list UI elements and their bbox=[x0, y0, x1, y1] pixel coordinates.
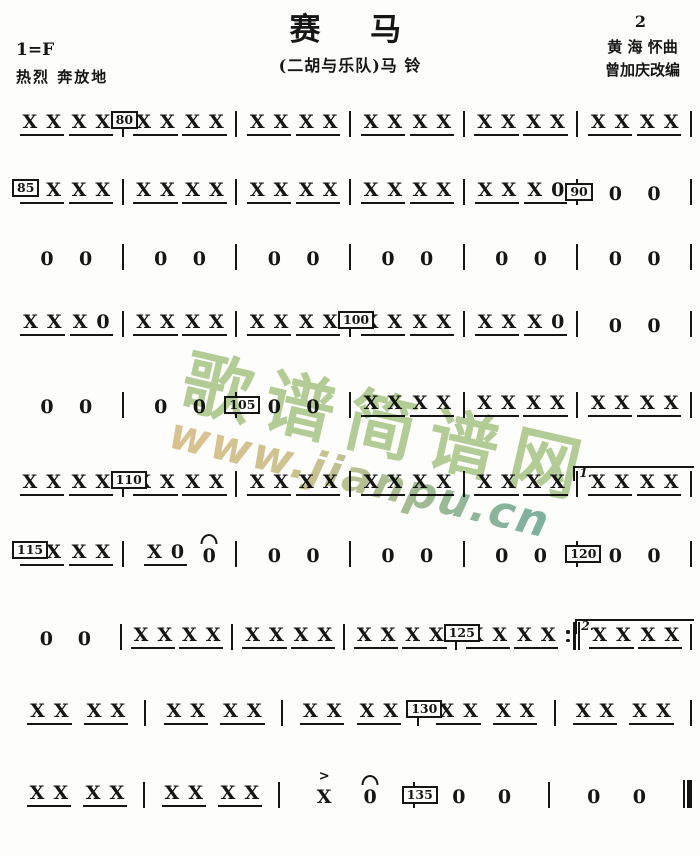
beamed-note-pair: XX bbox=[637, 394, 682, 417]
strike-note: X bbox=[463, 702, 478, 721]
measure: 00 bbox=[10, 398, 122, 418]
strike-note: X bbox=[591, 394, 606, 413]
strike-note: X bbox=[95, 473, 110, 492]
measure: 00 bbox=[465, 250, 577, 270]
accented-note: >X bbox=[317, 788, 332, 807]
strike-note: X bbox=[209, 313, 224, 332]
rest-note: 0 bbox=[79, 398, 92, 417]
strike-note: X bbox=[436, 394, 451, 413]
beamed-note-pair: XX bbox=[410, 181, 455, 204]
strike-note: X bbox=[136, 181, 151, 200]
rest-note: 0 bbox=[193, 398, 206, 417]
strike-note: X bbox=[188, 784, 203, 803]
score-line: XXX0XXXXXXXX100XXXXXXX000 bbox=[10, 299, 692, 337]
strike-note: X bbox=[53, 784, 68, 803]
beamed-note-pair: XX bbox=[133, 181, 178, 204]
strike-note: X bbox=[185, 313, 200, 332]
strike-note: X bbox=[223, 702, 238, 721]
beamed-note-pair: XX bbox=[296, 473, 341, 496]
beamed-note-pair: XX bbox=[296, 181, 341, 204]
measure: 00 bbox=[237, 547, 349, 567]
strike-note: X bbox=[364, 181, 379, 200]
strike-note: X bbox=[405, 626, 420, 645]
strike-note: X bbox=[387, 473, 402, 492]
strike-note: X bbox=[492, 626, 507, 645]
beamed-note-pair: XX bbox=[27, 702, 72, 725]
measure-number-box: 130 bbox=[406, 700, 442, 718]
strike-note: X bbox=[245, 626, 260, 645]
beamed-note-pair: XX bbox=[637, 113, 682, 136]
strike-note: X bbox=[413, 181, 428, 200]
rest-note: 0 bbox=[495, 547, 508, 566]
strike-note: X bbox=[87, 702, 102, 721]
strike-note: X bbox=[160, 473, 175, 492]
fermata-icon bbox=[201, 534, 218, 544]
measure: 00 bbox=[550, 788, 683, 808]
beamed-note-pair: XX bbox=[133, 113, 178, 136]
strike-note: X bbox=[182, 626, 197, 645]
measure: XXX0 bbox=[465, 181, 577, 205]
strike-note: X bbox=[250, 473, 265, 492]
strike-note: X bbox=[323, 313, 338, 332]
measure: XXXX bbox=[10, 784, 143, 808]
fermata-icon bbox=[362, 775, 379, 785]
measure: XXXX bbox=[465, 473, 577, 497]
measure-number-box: 80 bbox=[111, 111, 138, 129]
rest-note: 0 bbox=[364, 786, 377, 808]
strike-note: X bbox=[110, 784, 125, 803]
strike-note: X bbox=[436, 113, 451, 132]
rest-note: 0 bbox=[306, 250, 319, 269]
measure: >X0 bbox=[280, 788, 413, 808]
strike-note: X bbox=[591, 113, 606, 132]
strike-note: X bbox=[274, 313, 289, 332]
strike-note: X bbox=[387, 113, 402, 132]
measure: 10500 bbox=[237, 398, 349, 418]
strike-note: X bbox=[269, 626, 284, 645]
strike-note: X bbox=[46, 113, 61, 132]
beamed-note-pair: XX bbox=[162, 784, 207, 807]
strike-note: X bbox=[23, 313, 38, 332]
barline bbox=[690, 541, 692, 567]
strike-note: X bbox=[190, 702, 205, 721]
strike-note: X bbox=[413, 313, 428, 332]
measure: 00 bbox=[10, 250, 122, 270]
measure: XXXX bbox=[10, 113, 122, 137]
beamed-note-pair: XX bbox=[69, 113, 114, 136]
rest-note: 0 bbox=[534, 547, 547, 566]
measure: 80XXXX bbox=[124, 113, 236, 137]
volta-bracket: 2. bbox=[575, 619, 694, 634]
strike-note: X bbox=[46, 473, 61, 492]
measure: 9000 bbox=[578, 185, 690, 205]
strike-note: X bbox=[157, 626, 172, 645]
strike-note: X bbox=[656, 702, 671, 721]
measure-number-box: 100 bbox=[338, 311, 374, 329]
measure: XXXX bbox=[146, 702, 280, 726]
rest-note: 0 bbox=[609, 317, 622, 336]
measure: XXXX bbox=[237, 113, 349, 137]
strike-note: X bbox=[478, 181, 493, 200]
strike-note: X bbox=[477, 394, 492, 413]
score-line: 000000000000 bbox=[10, 232, 692, 270]
accent-icon: > bbox=[319, 770, 330, 783]
beamed-note-pair: XX bbox=[69, 181, 114, 204]
strike-note: X bbox=[46, 181, 61, 200]
score-line: 115XXXXX0000000012000 bbox=[10, 529, 692, 567]
rest-note: 0 bbox=[203, 545, 216, 567]
strike-note: X bbox=[30, 702, 45, 721]
beamed-note-pair: XX bbox=[247, 313, 292, 336]
beamed-note-pair: XX bbox=[354, 626, 399, 649]
strike-note: X bbox=[550, 394, 565, 413]
barline bbox=[690, 700, 692, 726]
rest-note: 0 bbox=[534, 250, 547, 269]
strike-note: X bbox=[160, 313, 175, 332]
beamed-note-pair: XX bbox=[588, 394, 633, 417]
rest-note: 0 bbox=[551, 313, 564, 332]
strike-note: X bbox=[477, 473, 492, 492]
rest-note: 0 bbox=[306, 398, 319, 417]
strike-note: X bbox=[526, 394, 541, 413]
measure: X00 bbox=[124, 543, 236, 567]
measure: XXXX bbox=[124, 181, 236, 205]
strike-note: X bbox=[136, 113, 151, 132]
measure: XXXX bbox=[122, 626, 232, 650]
strike-note: X bbox=[364, 113, 379, 132]
beamed-note-pair: XX bbox=[493, 702, 538, 725]
strike-note: X bbox=[299, 113, 314, 132]
rest-note: 0 bbox=[171, 543, 184, 562]
beamed-note-pair: XX bbox=[131, 626, 176, 649]
barline bbox=[690, 392, 692, 418]
beamed-note-pair: XX bbox=[20, 113, 65, 136]
measure: 00 bbox=[10, 630, 120, 650]
rest-note: 0 bbox=[551, 181, 564, 200]
strike-note: X bbox=[165, 784, 180, 803]
strike-note: X bbox=[23, 113, 38, 132]
beamed-note-pair: XX bbox=[475, 181, 520, 204]
beamed-note-pair: XX bbox=[474, 394, 519, 417]
measure-number-box: 110 bbox=[111, 471, 147, 489]
measure: XXXX bbox=[351, 181, 463, 205]
strike-note: X bbox=[209, 181, 224, 200]
beamed-note-pair: XX bbox=[296, 113, 341, 136]
strike-note: X bbox=[387, 394, 402, 413]
strike-note: X bbox=[501, 394, 516, 413]
strike-note: X bbox=[72, 181, 87, 200]
strike-note: X bbox=[299, 313, 314, 332]
rest-note: 0 bbox=[647, 547, 660, 566]
strike-note: X bbox=[47, 313, 62, 332]
strike-note: X bbox=[576, 702, 591, 721]
measure: 00 bbox=[351, 547, 463, 567]
strike-note: X bbox=[527, 313, 542, 332]
rest-note: 0 bbox=[609, 185, 622, 204]
strike-note: X bbox=[526, 473, 541, 492]
strike-note: X bbox=[247, 702, 262, 721]
beamed-note-pair: XX bbox=[247, 113, 292, 136]
strike-note: X bbox=[250, 181, 265, 200]
rest-note: 0 bbox=[420, 547, 433, 566]
measure: 00 bbox=[124, 250, 236, 270]
strike-note: X bbox=[160, 113, 175, 132]
beamed-note-pair: XX bbox=[182, 181, 227, 204]
measure: 00 bbox=[351, 250, 463, 270]
strike-note: X bbox=[167, 702, 182, 721]
measure-number-box: 85 bbox=[12, 179, 39, 197]
rest-note: 0 bbox=[268, 547, 281, 566]
strike-note: X bbox=[413, 113, 428, 132]
strike-note: X bbox=[303, 702, 318, 721]
beamed-note-pair: XX bbox=[523, 473, 568, 496]
rest-note: 0 bbox=[587, 788, 600, 807]
measure: 2.XXXX bbox=[580, 626, 690, 650]
volta-label: 2. bbox=[581, 620, 594, 632]
strike-note: X bbox=[72, 473, 87, 492]
strike-note: X bbox=[381, 626, 396, 645]
strike-note: X bbox=[615, 113, 630, 132]
measure-number-box: 120 bbox=[565, 545, 601, 563]
score-line: XXXX80XXXXXXXXXXXXXXXXXXXX bbox=[10, 99, 692, 137]
strike-note: X bbox=[23, 473, 38, 492]
measure: 00 bbox=[578, 317, 690, 337]
strike-note: X bbox=[221, 784, 236, 803]
rest-note: 0 bbox=[268, 250, 281, 269]
barline-thin bbox=[683, 780, 685, 808]
measure: 125XXXX bbox=[457, 626, 567, 650]
strike-note: X bbox=[364, 394, 379, 413]
measure: 00 bbox=[465, 547, 577, 567]
beamed-note-pair: XX bbox=[182, 313, 227, 336]
beamed-note-pair: XX bbox=[474, 113, 519, 136]
strike-note: X bbox=[501, 473, 516, 492]
beamed-note-pair: X0 bbox=[524, 313, 567, 336]
measure: XXXX bbox=[465, 113, 577, 137]
strike-note: X bbox=[185, 473, 200, 492]
measure: XXXX bbox=[237, 473, 349, 497]
beamed-note-pair: XX bbox=[523, 113, 568, 136]
beamed-note-pair: XX bbox=[182, 473, 227, 496]
beamed-note-pair: XX bbox=[247, 473, 292, 496]
measure: 130XXXX bbox=[419, 702, 553, 726]
measure-number-box: 135 bbox=[402, 786, 438, 804]
beamed-note-pair: XX bbox=[573, 702, 618, 725]
strike-note: X bbox=[383, 702, 398, 721]
measure: XXXX bbox=[233, 626, 343, 650]
rest-note: 0 bbox=[420, 250, 433, 269]
measure-number-box: 105 bbox=[224, 396, 260, 414]
beamed-note-pair: XX bbox=[69, 473, 114, 496]
beamed-note-pair: XX bbox=[84, 702, 129, 725]
strike-note: X bbox=[360, 702, 375, 721]
rest-note: 0 bbox=[452, 788, 465, 807]
strike-note: X bbox=[357, 626, 372, 645]
strike-note: X bbox=[250, 313, 265, 332]
beamed-note-pair: X0 bbox=[70, 313, 113, 336]
strike-note: X bbox=[95, 113, 110, 132]
beamed-note-pair: XX bbox=[69, 543, 114, 566]
strike-note: X bbox=[387, 181, 402, 200]
strike-note: X bbox=[323, 473, 338, 492]
score-line: XXXXXXXX>X01350000 bbox=[10, 770, 692, 808]
measure: XXXX bbox=[556, 702, 690, 726]
rest-note: 0 bbox=[647, 250, 660, 269]
score-line: XXXXXXXXXXXX130XXXXXXXX bbox=[10, 688, 692, 726]
rest-note: 0 bbox=[381, 250, 394, 269]
rest-note: 0 bbox=[154, 250, 167, 269]
beamed-note-pair: XX bbox=[300, 702, 345, 725]
strike-note: X bbox=[185, 113, 200, 132]
measure: 00 bbox=[124, 398, 236, 418]
repeat-dots bbox=[566, 630, 570, 642]
strike-note: X bbox=[436, 313, 451, 332]
rest-note: 0 bbox=[498, 788, 511, 807]
strike-note: X bbox=[72, 543, 87, 562]
strike-note: X bbox=[550, 113, 565, 132]
strike-note: X bbox=[502, 313, 517, 332]
strike-note: X bbox=[327, 702, 342, 721]
beamed-note-pair: XX bbox=[402, 626, 447, 649]
measure-number-box: 125 bbox=[444, 624, 480, 642]
measure: XXXX bbox=[10, 473, 122, 497]
beamed-note-pair: XX bbox=[361, 394, 406, 417]
rest-note: 0 bbox=[495, 250, 508, 269]
rest-note: 0 bbox=[647, 317, 660, 336]
strike-note: X bbox=[478, 313, 493, 332]
strike-note: X bbox=[615, 394, 630, 413]
strike-note: X bbox=[520, 702, 535, 721]
beamed-note-pair: XX bbox=[357, 702, 402, 725]
strike-note: X bbox=[244, 784, 259, 803]
strike-note: X bbox=[72, 113, 87, 132]
beamed-note-pair: XX bbox=[474, 473, 519, 496]
rest-note: 0 bbox=[306, 547, 319, 566]
strike-note: X bbox=[274, 113, 289, 132]
score-line: 85XXXXXXXXXXXXXXXXXXX09000 bbox=[10, 167, 692, 205]
strike-note: X bbox=[640, 394, 655, 413]
rest-note: 0 bbox=[79, 250, 92, 269]
measure: 1.XXXX bbox=[578, 473, 690, 497]
measure: XXXX bbox=[465, 394, 577, 418]
strike-note: X bbox=[526, 113, 541, 132]
strike-note: X bbox=[86, 784, 101, 803]
strike-note: X bbox=[502, 181, 517, 200]
strike-note: X bbox=[436, 473, 451, 492]
measure: 00 bbox=[578, 250, 690, 270]
strike-note: X bbox=[95, 181, 110, 200]
beamed-note-pair: XX bbox=[361, 113, 406, 136]
barline bbox=[690, 311, 692, 337]
beamed-note-pair: XX bbox=[361, 181, 406, 204]
measure: 13500 bbox=[415, 788, 548, 808]
strike-note: X bbox=[477, 113, 492, 132]
strike-note: X bbox=[550, 473, 565, 492]
rest-note: 0 bbox=[647, 185, 660, 204]
score-area: XXXX80XXXXXXXXXXXXXXXXXXXX85XXXXXXXXXXXX… bbox=[10, 0, 692, 856]
beamed-note-pair: XX bbox=[296, 313, 341, 336]
measure: XXX0 bbox=[465, 313, 577, 337]
strike-note: X bbox=[387, 313, 402, 332]
rest-note: 0 bbox=[609, 250, 622, 269]
beamed-note-pair: XX bbox=[410, 473, 455, 496]
beamed-note-pair: XX bbox=[164, 702, 209, 725]
sheet-music-page: 2 赛 马 黄 海 怀曲 曾加庆改编 1=F (二胡与乐队)马 铃 热烈 奔放地… bbox=[0, 0, 700, 856]
measure: XXXX bbox=[345, 626, 455, 650]
strike-note: X bbox=[54, 702, 69, 721]
measure: XXXX bbox=[145, 784, 278, 808]
beamed-note-pair: XX bbox=[218, 784, 263, 807]
strike-note: X bbox=[429, 626, 444, 645]
rest-note: 0 bbox=[633, 788, 646, 807]
measure: 00 bbox=[237, 250, 349, 270]
measure: 115XXXX bbox=[10, 543, 122, 567]
strike-note: X bbox=[250, 113, 265, 132]
rest-note: 0 bbox=[78, 630, 91, 649]
measure: XXXX bbox=[578, 113, 690, 137]
score-line: 00XXXXXXXXXXXX125XXXX2.XXXX bbox=[10, 612, 692, 650]
beamed-note-pair: X0 bbox=[144, 543, 187, 566]
measure-number-box: 115 bbox=[12, 541, 48, 559]
strike-note: X bbox=[541, 626, 556, 645]
rest-note: 0 bbox=[40, 250, 53, 269]
beamed-note-pair: XX bbox=[410, 113, 455, 136]
measure: 110XXXX bbox=[124, 473, 236, 497]
strike-note: X bbox=[160, 181, 175, 200]
strike-note: X bbox=[413, 473, 428, 492]
strike-note: X bbox=[600, 702, 615, 721]
strike-note: X bbox=[664, 113, 679, 132]
strike-note: X bbox=[46, 543, 61, 562]
beamed-note-pair: XX bbox=[410, 313, 455, 336]
measure-number-box: 90 bbox=[565, 183, 592, 201]
rest-note: 0 bbox=[40, 630, 53, 649]
rest-note: 0 bbox=[193, 250, 206, 269]
strike-note: X bbox=[640, 113, 655, 132]
score-line: XXXX110XXXXXXXXXXXXXXXX1.XXXX bbox=[10, 459, 692, 497]
strike-note: X bbox=[147, 543, 162, 562]
strike-note: X bbox=[206, 626, 221, 645]
measure: XXXX bbox=[124, 313, 236, 337]
beamed-note-pair: XX bbox=[514, 626, 559, 649]
beamed-note-pair: XX bbox=[436, 702, 481, 725]
strike-note: X bbox=[664, 394, 679, 413]
beamed-note-pair: XX bbox=[475, 313, 520, 336]
beamed-note-pair: XX bbox=[247, 181, 292, 204]
strike-note: X bbox=[185, 181, 200, 200]
measure: XXXX bbox=[237, 181, 349, 205]
measure: XXXX bbox=[283, 702, 417, 726]
beamed-note-pair: XX bbox=[20, 473, 65, 496]
barline bbox=[690, 179, 692, 205]
fermata-rest: 0 bbox=[364, 788, 377, 807]
rest-note: 0 bbox=[381, 547, 394, 566]
strike-note: X bbox=[95, 543, 110, 562]
strike-note: X bbox=[294, 626, 309, 645]
beamed-note-pair: XX bbox=[182, 113, 227, 136]
rest-note: 0 bbox=[268, 398, 281, 417]
beamed-note-pair: XX bbox=[83, 784, 128, 807]
strike-note: X bbox=[299, 181, 314, 200]
strike-note: X bbox=[496, 702, 511, 721]
strike-note: X bbox=[134, 626, 149, 645]
beamed-note-pair: XX bbox=[523, 394, 568, 417]
rest-note: 0 bbox=[154, 398, 167, 417]
measure: XXXX bbox=[351, 113, 463, 137]
barline-thick bbox=[687, 780, 692, 808]
measure: XXXX bbox=[10, 702, 144, 726]
beamed-note-pair: XX bbox=[220, 702, 265, 725]
